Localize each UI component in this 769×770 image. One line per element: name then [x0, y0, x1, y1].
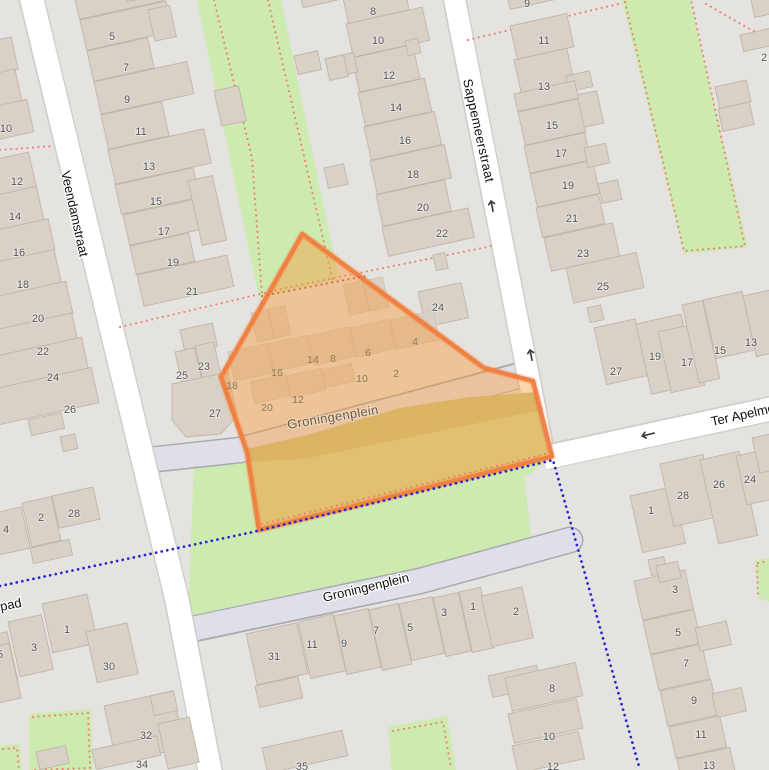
svg-text:7: 7 [373, 625, 379, 637]
svg-text:27: 27 [610, 366, 622, 378]
svg-text:24: 24 [744, 474, 756, 486]
svg-text:11: 11 [695, 729, 706, 741]
svg-text:31: 31 [268, 651, 280, 663]
svg-text:34: 34 [136, 759, 148, 770]
svg-text:1: 1 [648, 505, 654, 517]
svg-text:20: 20 [32, 313, 44, 325]
svg-text:2: 2 [761, 52, 767, 64]
svg-text:13: 13 [143, 161, 155, 173]
svg-text:5: 5 [675, 627, 681, 639]
svg-text:23: 23 [198, 361, 210, 373]
svg-text:26: 26 [64, 404, 76, 416]
svg-text:3: 3 [31, 642, 37, 654]
svg-text:3: 3 [441, 607, 447, 619]
svg-text:9: 9 [341, 638, 347, 650]
svg-text:16: 16 [399, 135, 411, 147]
svg-text:8: 8 [370, 6, 376, 18]
svg-text:10: 10 [543, 731, 555, 743]
svg-text:17: 17 [681, 357, 693, 369]
svg-text:6: 6 [365, 347, 371, 359]
svg-text:20: 20 [261, 402, 273, 414]
svg-text:15: 15 [714, 345, 726, 357]
svg-text:16: 16 [13, 247, 25, 259]
svg-text:20: 20 [417, 202, 429, 214]
svg-text:27: 27 [209, 408, 221, 420]
svg-text:7: 7 [123, 62, 129, 74]
svg-text:21: 21 [186, 286, 198, 298]
svg-text:1: 1 [64, 624, 70, 636]
svg-text:4: 4 [3, 524, 9, 536]
svg-text:2: 2 [38, 512, 44, 524]
svg-text:7: 7 [683, 658, 689, 670]
svg-text:9: 9 [691, 695, 697, 707]
svg-text:35: 35 [296, 761, 308, 770]
svg-text:3: 3 [672, 584, 678, 596]
svg-text:11: 11 [135, 126, 146, 138]
svg-text:32: 32 [140, 730, 152, 742]
svg-text:26: 26 [713, 479, 725, 491]
svg-text:8: 8 [549, 683, 555, 695]
svg-text:2: 2 [393, 368, 399, 380]
svg-text:8: 8 [330, 353, 336, 365]
svg-text:18: 18 [226, 380, 238, 392]
svg-text:16: 16 [271, 367, 283, 379]
svg-text:12: 12 [383, 70, 395, 82]
svg-text:5: 5 [109, 31, 115, 43]
svg-text:24: 24 [47, 372, 59, 384]
svg-text:22: 22 [37, 346, 49, 358]
svg-text:14: 14 [9, 211, 21, 223]
svg-text:1: 1 [470, 601, 476, 613]
svg-text:17: 17 [158, 226, 170, 238]
svg-text:12: 12 [292, 394, 304, 406]
svg-text:10: 10 [0, 123, 12, 135]
svg-text:9: 9 [124, 94, 130, 106]
svg-text:18: 18 [17, 279, 29, 291]
svg-text:5: 5 [0, 649, 3, 661]
svg-text:23: 23 [577, 248, 589, 260]
svg-text:28: 28 [677, 490, 689, 502]
svg-text:11: 11 [306, 639, 317, 651]
svg-text:19: 19 [562, 180, 574, 192]
svg-text:30: 30 [103, 661, 115, 673]
svg-text:9: 9 [524, 0, 530, 10]
svg-text:2: 2 [513, 606, 519, 618]
svg-text:13: 13 [538, 81, 550, 93]
svg-text:15: 15 [546, 120, 558, 132]
svg-text:24: 24 [432, 302, 444, 314]
svg-text:4: 4 [412, 336, 418, 348]
svg-text:28: 28 [68, 508, 80, 520]
svg-text:11: 11 [538, 35, 549, 47]
svg-text:10: 10 [372, 35, 384, 47]
svg-text:12: 12 [547, 761, 559, 770]
svg-text:14: 14 [390, 102, 402, 114]
svg-text:10: 10 [356, 373, 368, 385]
svg-text:19: 19 [649, 351, 661, 363]
svg-text:13: 13 [703, 760, 715, 770]
svg-text:5: 5 [407, 622, 413, 634]
svg-text:19: 19 [167, 257, 179, 269]
svg-text:12: 12 [11, 176, 23, 188]
svg-text:15: 15 [150, 196, 162, 208]
svg-text:22: 22 [436, 228, 448, 240]
svg-text:18: 18 [407, 169, 419, 181]
svg-text:14: 14 [307, 354, 319, 366]
svg-text:21: 21 [566, 213, 578, 225]
svg-text:13: 13 [745, 337, 757, 349]
svg-text:25: 25 [597, 281, 609, 293]
svg-text:17: 17 [555, 148, 567, 160]
svg-text:25: 25 [176, 370, 188, 382]
